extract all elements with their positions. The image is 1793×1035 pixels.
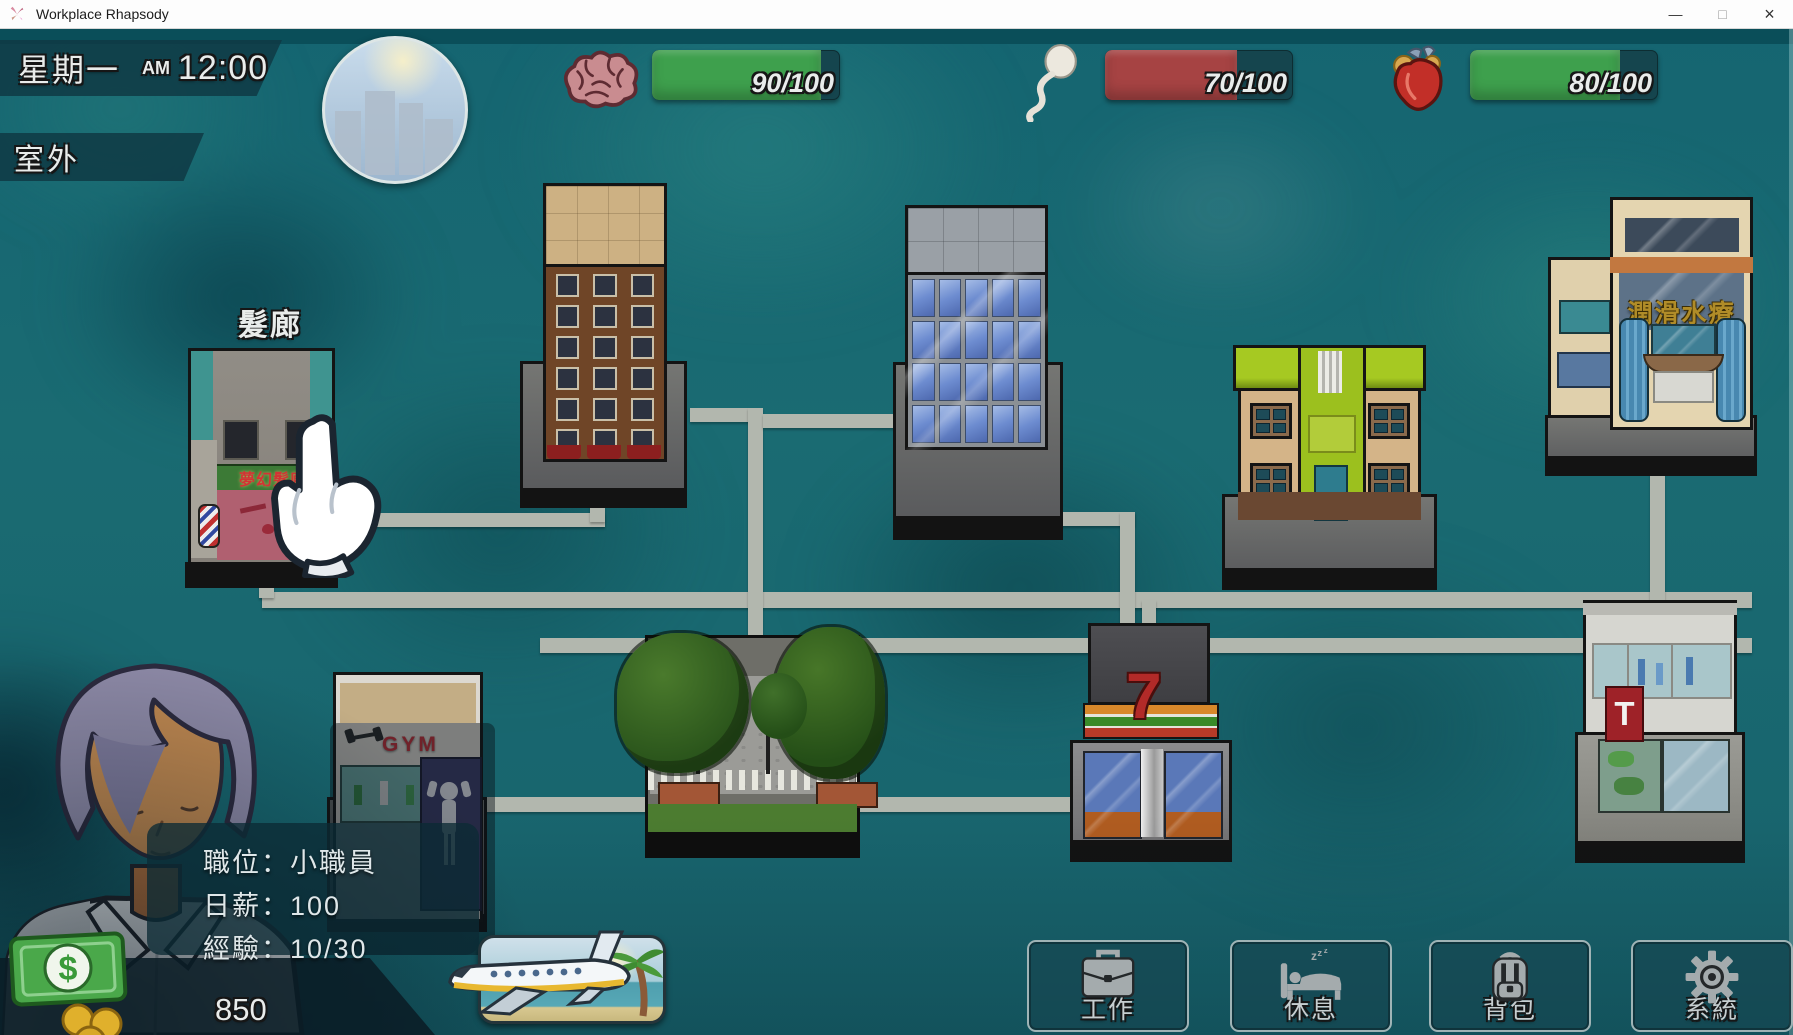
store-window (1083, 751, 1142, 839)
weather-widget sunny-city-icon (322, 36, 468, 184)
path-segment (763, 414, 895, 428)
cash-icon: $ $ (8, 928, 138, 1035)
stat-value: 80/100 (1569, 68, 1652, 99)
datetime-banner: 星期一 AM 12:00 (0, 40, 282, 96)
svg-text:z: z (1311, 949, 1317, 963)
store-window (1164, 751, 1223, 839)
sperm-icon (1019, 44, 1085, 122)
window-title: Workplace Rhapsody (36, 6, 169, 22)
stat-value: 70/100 (1204, 68, 1287, 99)
meridiem-label: AM (142, 58, 170, 79)
building-general-store[interactable]: T (1575, 600, 1745, 891)
building-glass-tower[interactable] (893, 205, 1063, 540)
rest-button[interactable]: z z z 休息 (1230, 940, 1392, 1032)
hair-salon-label: 髮廊 (238, 300, 302, 344)
tree (751, 673, 807, 739)
system-button[interactable]: 系統 (1631, 940, 1793, 1032)
road-main (262, 592, 1752, 608)
close-button[interactable]: × (1746, 0, 1793, 28)
heart-icon (1386, 44, 1448, 118)
building-convenience-store[interactable]: 7 (1070, 623, 1232, 890)
svg-text:$: $ (59, 950, 78, 988)
travel-button[interactable] (478, 935, 666, 1024)
t-store-sign: T (1605, 686, 1644, 742)
briefcase-icon (1076, 949, 1140, 1001)
work-button[interactable]: 工作 (1027, 940, 1189, 1032)
location-label: 室外 (14, 135, 80, 179)
player-title-row: 職位：小職員 (203, 841, 479, 880)
app-window: Workplace Rhapsody — □ × 髮廊 (0, 0, 1793, 1035)
stat-value: 90/100 (751, 68, 834, 99)
svg-text:z: z (1317, 949, 1322, 959)
backpack-icon (1482, 949, 1538, 1005)
maximize-button[interactable]: □ (1699, 0, 1746, 28)
barber-pole (198, 504, 220, 548)
spa-annex (1548, 257, 1616, 427)
minimize-button[interactable]: — (1652, 0, 1699, 28)
product-window (1598, 739, 1662, 813)
store-door (1141, 749, 1163, 837)
title-bar: Workplace Rhapsody — □ × (0, 0, 1793, 29)
hand-cursor (243, 413, 383, 578)
player-salary-row: 日薪：100 (203, 884, 479, 923)
path-segment (748, 408, 763, 653)
seven-sign: 7 (1126, 659, 1162, 733)
glass-window (1662, 739, 1730, 813)
backpack-button[interactable]: 背包 (1429, 940, 1591, 1032)
time-label: 12:00 (178, 49, 268, 88)
player-info-panel: 職位：小職員 日薪：100 經驗：10/30 (147, 823, 479, 955)
game-viewport: 髮廊 夢幻髮廊 (0, 28, 1793, 1035)
building-brick-apartment[interactable] (506, 183, 706, 508)
building-green-apartment[interactable] (1222, 345, 1437, 590)
gear-icon (1684, 949, 1740, 1005)
building-spa[interactable]: 潤滑水療 (1545, 197, 1757, 476)
money-amount: 850 (215, 992, 267, 1028)
day-label: 星期一 (18, 45, 120, 91)
app-logo-icon (8, 5, 26, 23)
svg-text:z: z (1324, 949, 1328, 955)
brain-icon (556, 48, 642, 110)
palm-tree-icon (597, 938, 666, 1018)
location-park[interactable] (645, 635, 860, 858)
bed-icon: z z z (1276, 949, 1346, 1003)
player-exp-row: 經驗：10/30 (203, 927, 479, 966)
window-edge (1789, 28, 1793, 1035)
location-banner: 室外 (0, 133, 204, 181)
